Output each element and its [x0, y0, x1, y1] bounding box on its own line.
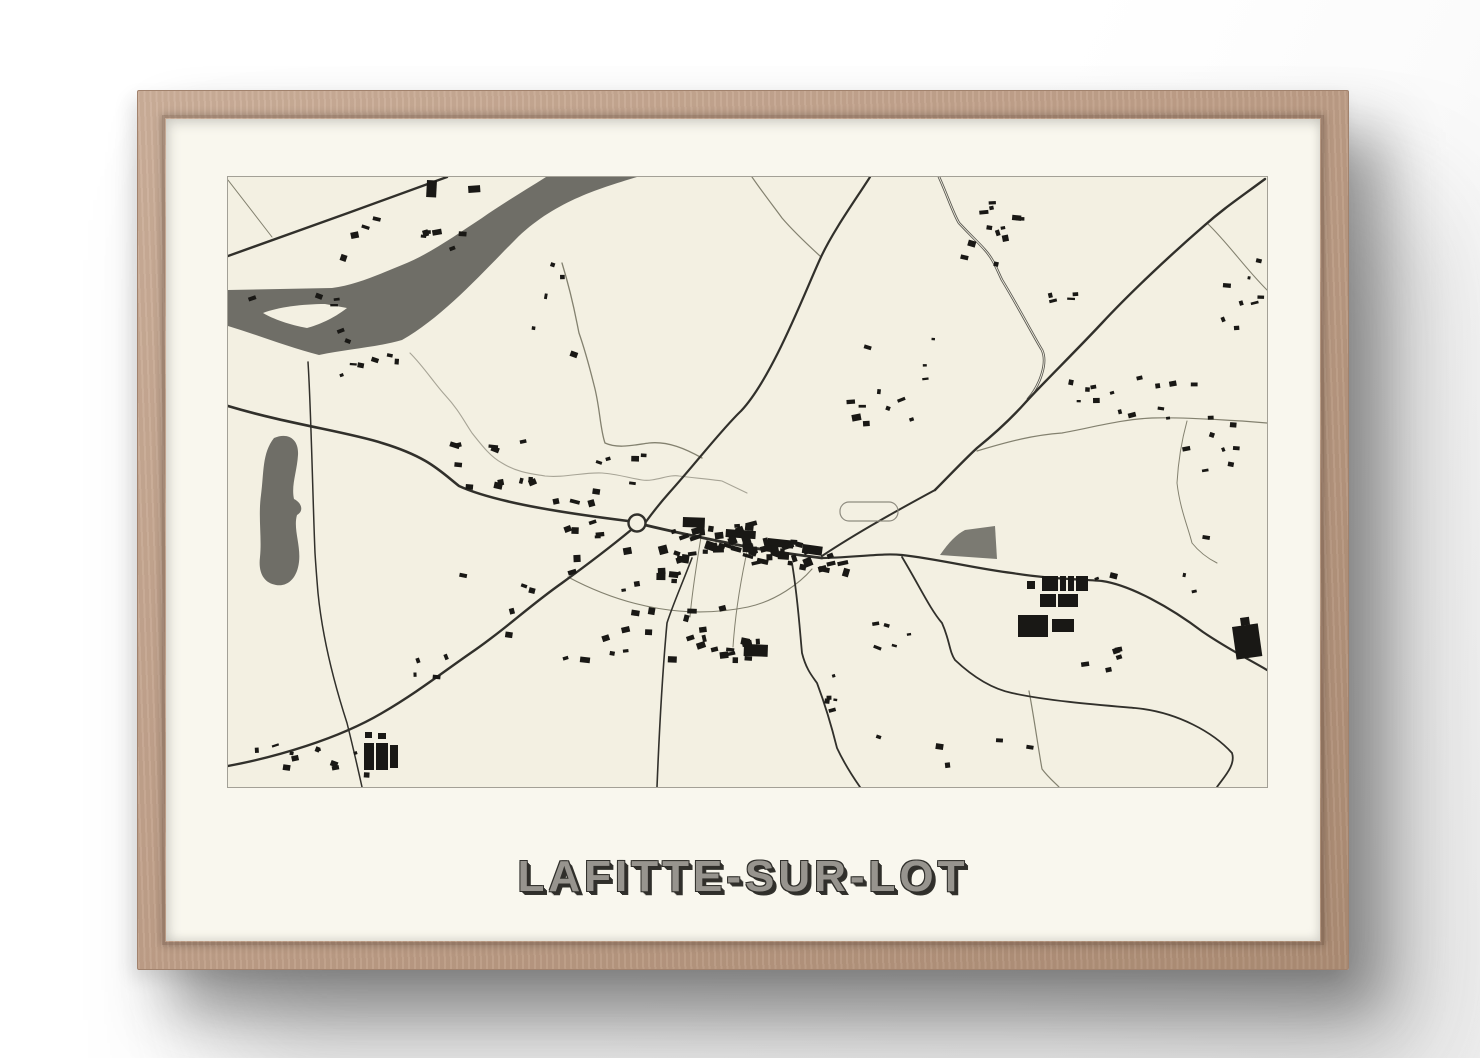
building: [340, 254, 348, 262]
building: [885, 406, 891, 411]
building: [699, 627, 707, 633]
building: [1209, 432, 1215, 438]
building: [595, 532, 604, 537]
building: [851, 413, 861, 421]
building: [745, 523, 754, 531]
building: [372, 216, 381, 222]
minor-road: [733, 547, 748, 647]
major-road: [902, 557, 1233, 787]
building: [1105, 667, 1112, 673]
major-road: [228, 177, 447, 256]
building: [570, 499, 581, 505]
building: [1027, 581, 1035, 589]
building: [421, 234, 427, 238]
building: [873, 645, 882, 651]
building: [1052, 619, 1074, 632]
building: [387, 353, 393, 358]
building: [828, 708, 836, 713]
building: [751, 560, 761, 566]
building: [1026, 745, 1034, 750]
building: [989, 206, 994, 211]
building: [490, 446, 499, 454]
building: [1048, 293, 1053, 299]
minor-road: [228, 180, 272, 237]
building: [1068, 379, 1074, 385]
major-road: [645, 177, 870, 523]
building: [528, 587, 535, 594]
building: [1234, 326, 1240, 331]
building: [1155, 383, 1160, 388]
building: [648, 607, 656, 615]
building: [683, 614, 690, 622]
building: [909, 417, 914, 422]
building: [683, 517, 705, 528]
building: [1157, 406, 1164, 410]
building: [350, 363, 357, 366]
building: [859, 405, 866, 408]
major-road: [935, 179, 1265, 490]
building: [550, 262, 555, 267]
building: [686, 634, 695, 641]
double-line-road-center: [939, 177, 1044, 399]
building: [1076, 576, 1088, 591]
building: [699, 527, 705, 536]
building: [459, 231, 467, 236]
building: [454, 462, 462, 467]
building: [1042, 576, 1058, 591]
building: [272, 743, 279, 747]
building: [456, 442, 462, 448]
building: [552, 498, 559, 505]
building: [596, 460, 603, 465]
building: [291, 755, 299, 762]
building: [1191, 589, 1197, 593]
building: [824, 698, 830, 704]
building: [1093, 398, 1100, 403]
building: [907, 633, 912, 636]
building: [1257, 295, 1264, 299]
minor-road: [1177, 421, 1217, 563]
building: [872, 621, 879, 626]
building: [1169, 380, 1177, 386]
minor-road: [1207, 223, 1267, 290]
building: [892, 644, 898, 648]
building: [339, 373, 344, 377]
major-road: [308, 362, 362, 787]
building: [986, 225, 992, 230]
building: [468, 185, 480, 193]
building: [1058, 594, 1078, 607]
building: [631, 456, 639, 462]
town-map: [228, 177, 1267, 787]
building: [623, 649, 629, 653]
building: [505, 631, 513, 638]
building: [497, 479, 504, 486]
building: [1115, 646, 1123, 652]
building: [842, 568, 850, 578]
building: [1202, 469, 1209, 473]
building: [703, 549, 708, 553]
field-wedge: [940, 526, 997, 559]
building: [415, 658, 420, 664]
building: [711, 646, 719, 652]
major-road: [792, 563, 860, 787]
building: [1040, 594, 1056, 607]
building: [864, 344, 872, 350]
building: [432, 229, 442, 236]
building: [1251, 301, 1259, 306]
building: [780, 548, 784, 555]
building: [1202, 535, 1210, 540]
building: [743, 544, 754, 552]
building: [788, 561, 793, 566]
building: [413, 672, 416, 676]
major-roads-layer: [228, 177, 1267, 787]
building: [621, 588, 626, 592]
building: [673, 550, 680, 556]
stream: [410, 353, 747, 493]
building: [390, 745, 398, 768]
building: [621, 626, 630, 633]
building: [1116, 654, 1123, 660]
roundabout: [629, 515, 646, 532]
building: [863, 421, 870, 427]
building: [923, 364, 927, 367]
building: [528, 477, 533, 482]
building: [687, 609, 697, 614]
building: [509, 608, 515, 615]
building: [1136, 375, 1143, 380]
minor-road: [752, 177, 820, 256]
building: [883, 623, 889, 628]
building: [520, 439, 527, 444]
town-map-svg: [228, 177, 1267, 787]
building: [989, 201, 996, 205]
river-lot: [228, 177, 637, 355]
minor-roads-layer: [228, 177, 1267, 787]
building: [708, 526, 714, 533]
building: [1118, 409, 1123, 414]
building: [426, 180, 437, 198]
building: [560, 275, 565, 279]
building: [433, 675, 441, 680]
building: [1182, 446, 1191, 452]
building: [601, 634, 610, 642]
building: [569, 350, 578, 358]
building: [567, 569, 576, 576]
building: [350, 231, 359, 239]
building: [1077, 400, 1081, 402]
building: [1230, 422, 1237, 428]
building: [1208, 416, 1214, 420]
building: [833, 698, 837, 701]
building: [826, 561, 835, 567]
building: [756, 639, 760, 645]
building: [656, 573, 665, 580]
building: [719, 651, 728, 659]
building: [371, 357, 379, 364]
building: [571, 527, 578, 534]
building: [1239, 300, 1244, 306]
map-border: [227, 176, 1268, 788]
building: [1002, 235, 1009, 242]
minor-road: [977, 418, 1267, 451]
building: [532, 326, 536, 330]
minor-road: [568, 569, 812, 612]
building: [1240, 617, 1250, 626]
building: [1085, 387, 1090, 392]
building: [702, 635, 707, 643]
major-road: [822, 490, 935, 556]
building: [1073, 292, 1079, 296]
minor-road: [1029, 691, 1059, 787]
building: [443, 654, 448, 661]
building: [832, 674, 836, 678]
building: [714, 532, 723, 540]
picture-frame: LAFITTE-SUR-LOT: [137, 90, 1349, 970]
building: [587, 499, 595, 507]
building: [1110, 391, 1115, 395]
minor-road: [690, 531, 702, 617]
building: [255, 747, 259, 753]
building: [589, 519, 597, 525]
building: [283, 764, 291, 771]
building: [1233, 446, 1240, 450]
building: [669, 571, 679, 578]
building: [1060, 576, 1066, 591]
building: [465, 484, 473, 490]
building: [733, 657, 739, 663]
poster-paper: LAFITTE-SUR-LOT: [166, 119, 1320, 941]
major-road: [822, 554, 1267, 670]
building: [459, 573, 467, 578]
building: [357, 362, 364, 368]
building: [544, 293, 548, 299]
building: [846, 399, 855, 404]
building: [996, 738, 1003, 742]
double-line-road: [939, 177, 1044, 399]
building: [365, 732, 372, 738]
building: [364, 772, 370, 778]
building: [837, 560, 848, 566]
building: [1016, 217, 1024, 221]
building: [979, 210, 988, 215]
building: [790, 539, 797, 545]
building: [376, 743, 388, 770]
building: [1191, 382, 1198, 386]
building: [562, 656, 568, 661]
building: [897, 397, 906, 403]
wall: LAFITTE-SUR-LOT: [0, 0, 1480, 1058]
building: [876, 734, 882, 739]
building: [1081, 661, 1090, 667]
building: [1128, 412, 1137, 419]
minor-road: [562, 263, 702, 458]
building: [1247, 276, 1250, 280]
building: [1223, 283, 1231, 288]
building: [960, 254, 969, 260]
building: [592, 488, 600, 495]
pond: [260, 436, 302, 585]
building: [1221, 447, 1225, 452]
building: [289, 751, 293, 755]
building: [726, 648, 734, 652]
building: [573, 555, 580, 562]
building: [629, 481, 636, 485]
building: [995, 229, 1001, 236]
building: [931, 338, 935, 341]
building: [394, 359, 399, 365]
building: [744, 656, 752, 661]
building: [1067, 297, 1075, 300]
building: [645, 629, 652, 635]
building: [609, 651, 615, 656]
building: [378, 733, 386, 739]
building: [1090, 385, 1096, 390]
building: [1000, 226, 1005, 230]
building: [1068, 576, 1074, 591]
building: [696, 641, 706, 650]
building: [671, 579, 677, 584]
building: [1018, 615, 1048, 637]
building: [1220, 316, 1225, 322]
building: [563, 525, 572, 533]
building: [580, 656, 591, 663]
building: [668, 656, 677, 663]
building: [922, 377, 929, 380]
poster-title: LAFITTE-SUR-LOT: [166, 852, 1320, 902]
building: [631, 610, 640, 617]
building: [641, 453, 647, 457]
building: [1182, 573, 1186, 578]
building: [634, 581, 640, 587]
building: [605, 457, 611, 462]
building: [519, 478, 524, 484]
building: [521, 583, 528, 588]
building: [361, 224, 370, 230]
building: [1228, 462, 1235, 468]
building: [1166, 417, 1170, 420]
major-road: [657, 558, 692, 787]
building: [877, 389, 881, 394]
building: [945, 762, 951, 768]
stadium-outline: [840, 502, 898, 521]
building: [623, 547, 632, 555]
building: [1232, 623, 1262, 659]
building: [330, 304, 338, 306]
building: [1109, 572, 1118, 579]
building: [935, 743, 943, 750]
building: [1256, 258, 1262, 263]
building: [1049, 298, 1057, 303]
building: [816, 548, 821, 554]
building: [658, 545, 669, 556]
